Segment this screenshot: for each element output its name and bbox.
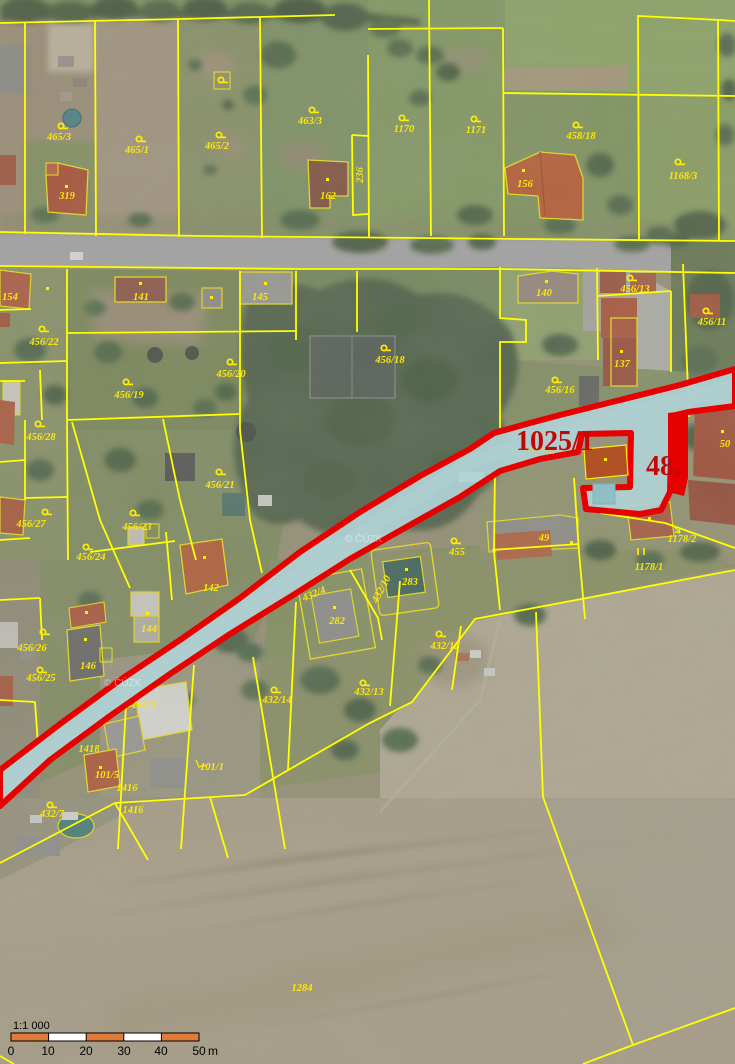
svg-text:1:1 000: 1:1 000 bbox=[13, 1020, 50, 1032]
svg-text:456/25: 456/25 bbox=[25, 673, 55, 684]
svg-text:456/23: 456/23 bbox=[121, 522, 151, 533]
svg-text:455: 455 bbox=[448, 547, 465, 558]
svg-text:319: 319 bbox=[58, 191, 76, 202]
svg-text:456/27: 456/27 bbox=[15, 519, 46, 530]
svg-text:40: 40 bbox=[154, 1044, 168, 1058]
svg-text:1178/2: 1178/2 bbox=[668, 534, 697, 545]
svg-text:142: 142 bbox=[203, 583, 220, 594]
svg-text:236: 236 bbox=[355, 166, 366, 184]
svg-text:282: 282 bbox=[328, 616, 346, 627]
svg-text:1178/1: 1178/1 bbox=[635, 562, 664, 573]
svg-text:465/2: 465/2 bbox=[204, 141, 230, 152]
svg-text:465/1: 465/1 bbox=[124, 145, 149, 156]
svg-text:456/28: 456/28 bbox=[25, 432, 56, 443]
svg-text:101/1: 101/1 bbox=[200, 762, 224, 773]
svg-text:1170: 1170 bbox=[394, 124, 415, 135]
svg-text:456/24: 456/24 bbox=[75, 552, 105, 563]
svg-text:1416: 1416 bbox=[123, 805, 145, 816]
svg-text:1418: 1418 bbox=[79, 744, 101, 755]
svg-text:50: 50 bbox=[192, 1044, 206, 1058]
svg-text:456/16: 456/16 bbox=[544, 385, 575, 396]
svg-text:© ČÚZK: © ČÚZK bbox=[345, 532, 383, 545]
svg-text:456/18: 456/18 bbox=[374, 355, 405, 366]
svg-text:146: 146 bbox=[80, 661, 97, 672]
svg-text:154: 154 bbox=[2, 292, 18, 303]
svg-text:432/7: 432/7 bbox=[39, 809, 65, 820]
svg-text:137: 137 bbox=[614, 359, 631, 370]
svg-text:456/22: 456/22 bbox=[28, 337, 59, 348]
svg-text:145: 145 bbox=[252, 292, 268, 303]
svg-text:30: 30 bbox=[117, 1044, 131, 1058]
svg-text:50: 50 bbox=[720, 439, 731, 450]
svg-text:456/21: 456/21 bbox=[204, 480, 234, 491]
svg-text:144: 144 bbox=[141, 624, 157, 635]
svg-text:101/5: 101/5 bbox=[95, 770, 119, 781]
svg-text:1416: 1416 bbox=[117, 783, 139, 794]
svg-text:456/19: 456/19 bbox=[113, 390, 144, 401]
svg-text:49: 49 bbox=[538, 533, 550, 544]
svg-text:1168/3: 1168/3 bbox=[669, 171, 698, 182]
svg-text:10: 10 bbox=[41, 1044, 55, 1058]
svg-text:0: 0 bbox=[8, 1044, 15, 1058]
svg-text:156: 156 bbox=[517, 179, 534, 190]
svg-text:1171: 1171 bbox=[466, 125, 486, 136]
svg-text:465/3: 465/3 bbox=[46, 132, 71, 143]
svg-text:456/20: 456/20 bbox=[215, 369, 246, 380]
svg-text:432/13: 432/13 bbox=[353, 687, 383, 698]
svg-text:463/3: 463/3 bbox=[297, 116, 322, 127]
svg-text:m: m bbox=[208, 1044, 218, 1058]
svg-text:432/14: 432/14 bbox=[261, 695, 291, 706]
svg-text:1025/1: 1025/1 bbox=[516, 426, 594, 457]
svg-text:456/26: 456/26 bbox=[16, 643, 47, 654]
svg-text:456/11: 456/11 bbox=[697, 317, 727, 328]
svg-text:1284: 1284 bbox=[292, 983, 313, 994]
svg-text:101/2: 101/2 bbox=[132, 700, 157, 711]
svg-text:456/13: 456/13 bbox=[619, 284, 649, 295]
svg-text:283: 283 bbox=[401, 577, 418, 588]
svg-text:432/12: 432/12 bbox=[429, 641, 460, 652]
svg-text:© ČÚZK: © ČÚZK bbox=[104, 676, 142, 689]
svg-text:140: 140 bbox=[536, 288, 553, 299]
svg-text:20: 20 bbox=[79, 1044, 93, 1058]
svg-text:48.: 48. bbox=[646, 451, 681, 482]
svg-text:458/18: 458/18 bbox=[565, 131, 596, 142]
svg-text:162: 162 bbox=[320, 191, 337, 202]
svg-text:141: 141 bbox=[133, 292, 149, 303]
